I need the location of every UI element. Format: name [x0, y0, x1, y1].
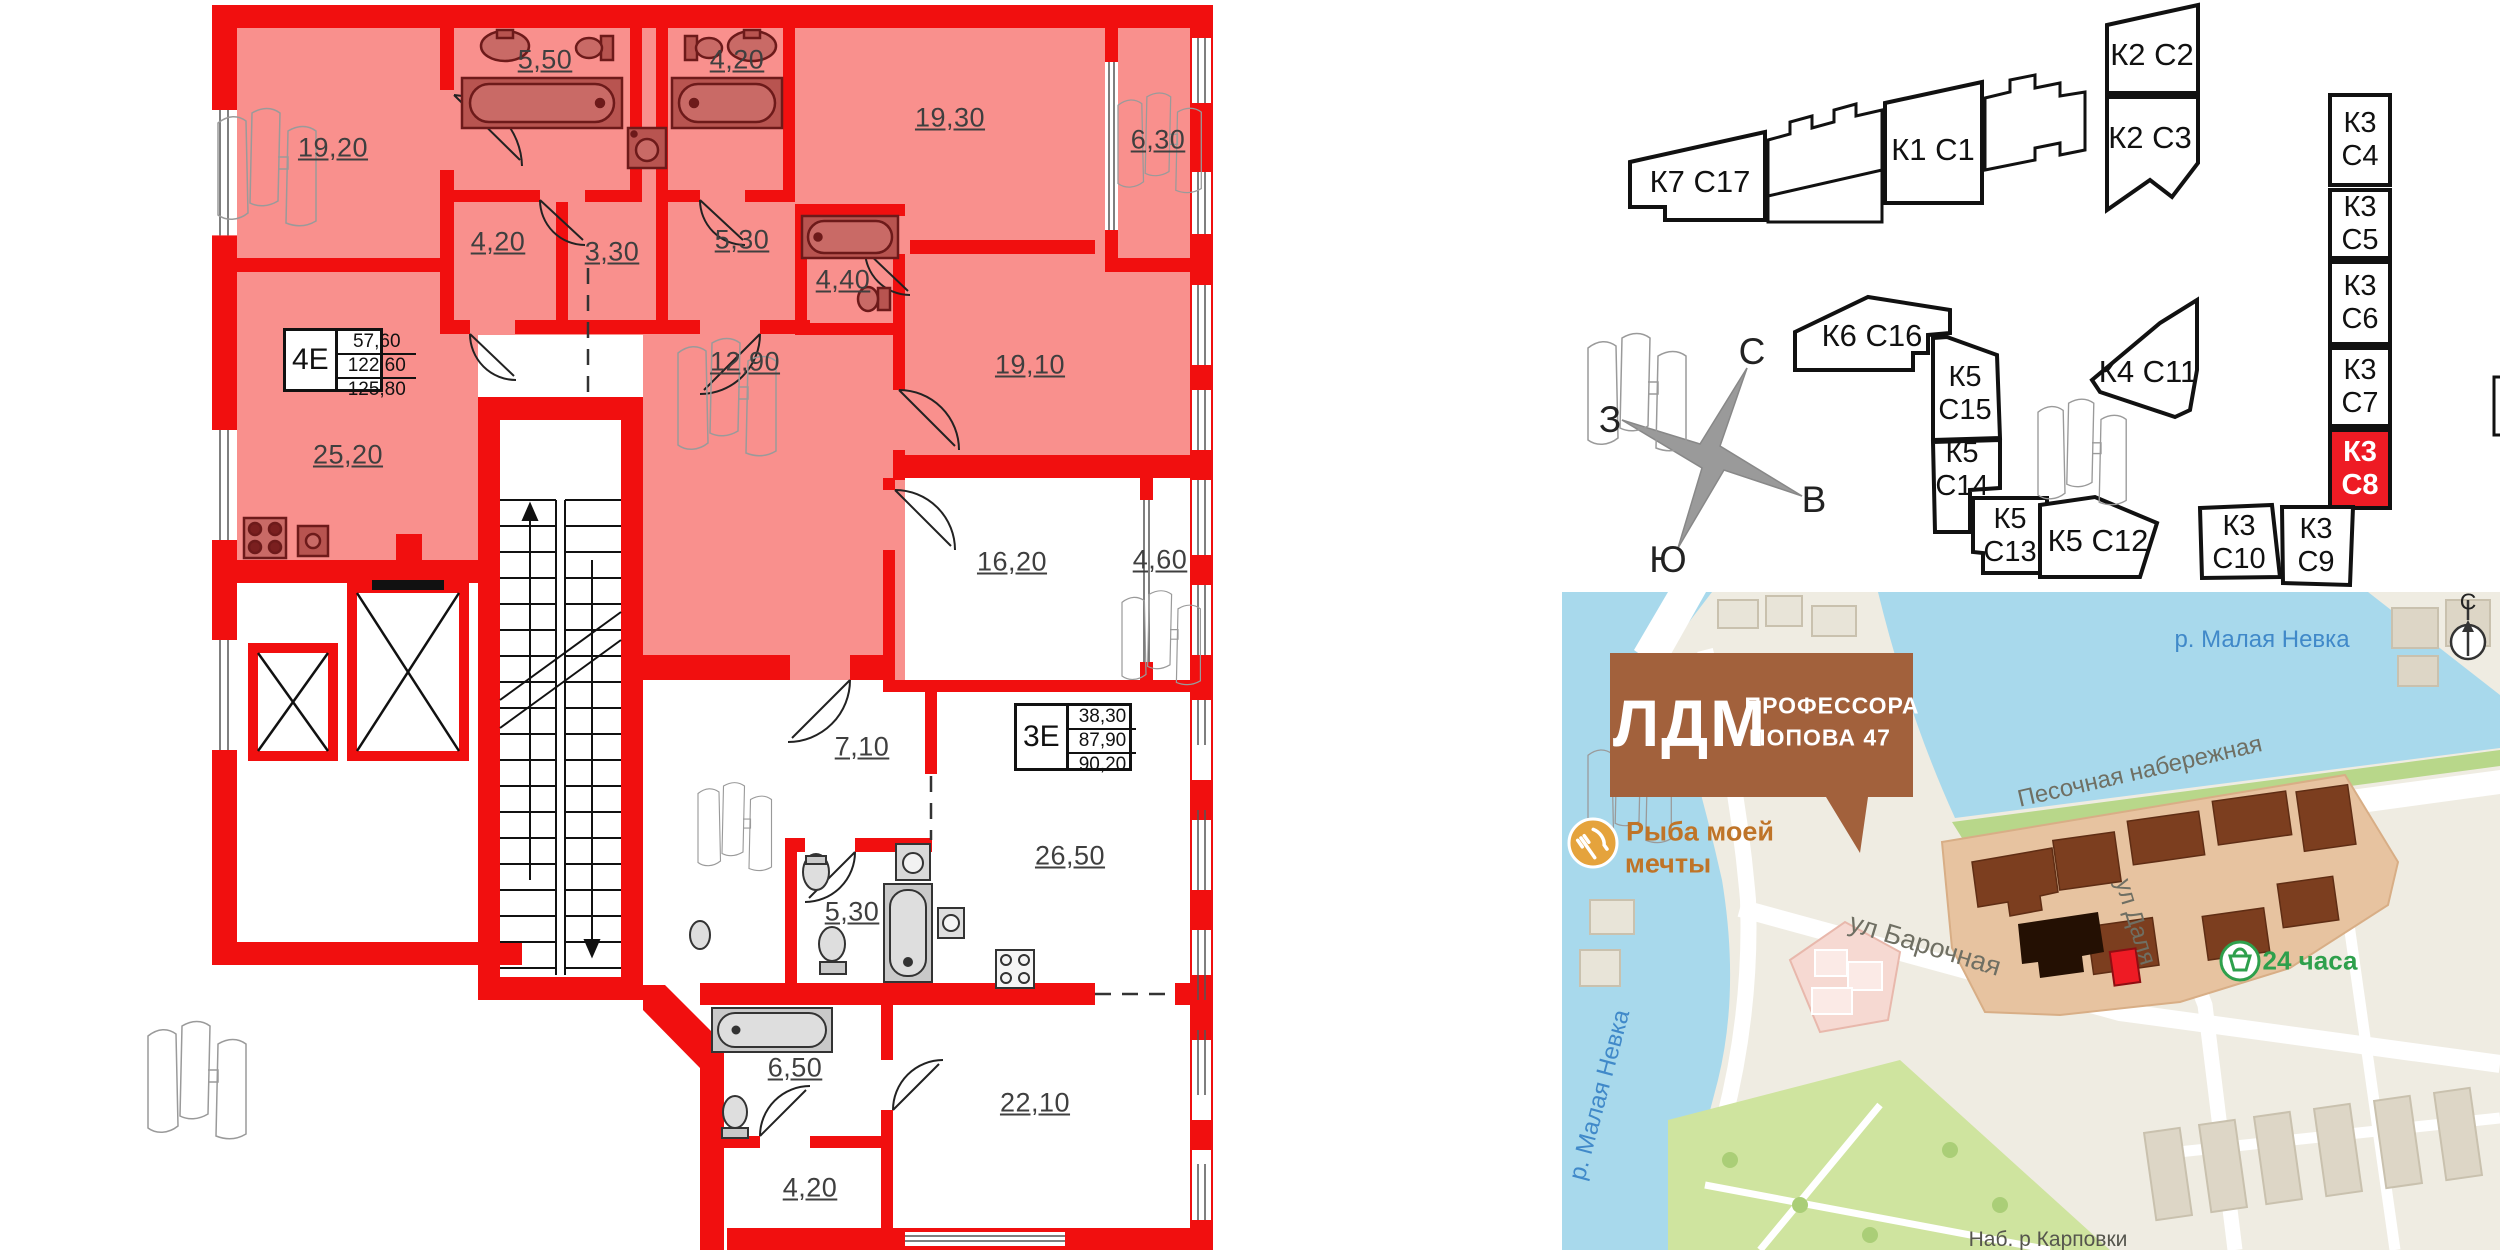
unit-4e-area-net: 122,60 [338, 353, 416, 377]
unit-4e-area-total: 125,80 [338, 377, 416, 401]
callout-subtitle-2: ПОПОВА 47 [1749, 725, 1891, 752]
room-area-3e-hall-b: 4,20 [783, 1173, 838, 1204]
site-label-k4c11[interactable]: К4 С11 [2099, 354, 2197, 390]
unit-3e-area-living: 38,30 [1069, 706, 1137, 728]
compass-west: З [1599, 399, 1621, 441]
unit-3e-code: 3Е [1017, 706, 1066, 768]
map-north-label: С [2460, 589, 2477, 616]
compass-east: В [1802, 479, 1827, 521]
site-label-k3c6[interactable]: К3С6 [2341, 270, 2378, 336]
site-label-k3c4[interactable]: К3С4 [2341, 107, 2378, 173]
store-icon[interactable] [2221, 942, 2259, 980]
unit-3e-area-total: 90,20 [1069, 752, 1137, 776]
site-label-k5c13[interactable]: К5С13 [1983, 503, 2036, 569]
site-label-k3c9[interactable]: К3С9 [2297, 513, 2334, 579]
site-label-k5c14[interactable]: К5С14 [1935, 437, 1988, 503]
compass-south: Ю [1649, 539, 1686, 581]
room-area-bath-c: 4,40 [816, 265, 871, 296]
unit-4e-info-table: 4Е 57,60 122,60 125,80 [283, 328, 383, 392]
compass-north: С [1739, 331, 1766, 373]
room-area-room-right: 19,10 [995, 350, 1065, 381]
site-label-k3c8-selected[interactable]: К3С8 [2341, 436, 2378, 502]
site-label-k1c1[interactable]: К1 С1 [1891, 132, 1975, 168]
site-building-unlabeled-2 [1985, 75, 2085, 170]
restaurant-icon[interactable] [1569, 819, 1617, 867]
restaurant-label-1: Рыба моей [1626, 817, 1774, 848]
room-area-kitchen: 25,20 [313, 440, 383, 471]
room-area-3e-bedroom: 16,20 [977, 547, 1047, 578]
room-area-living: 19,20 [298, 133, 368, 164]
room-area-3e-bath: 5,30 [825, 897, 880, 928]
floorplan-page: 19,20 5,50 4,20 19,30 6,30 4,20 3,30 5,3… [0, 0, 2500, 1250]
unit-3e-area-net: 87,90 [1069, 728, 1137, 752]
elevator-shafts [253, 580, 464, 756]
unit-4e-area-living: 57,60 [338, 331, 416, 353]
site-building-edge [2494, 377, 2500, 435]
unit-3e-info-table: 3Е 38,30 87,90 90,20 [1014, 703, 1132, 771]
site-label-k5c15[interactable]: К5С15 [1938, 361, 1991, 427]
room-area-bath-b: 4,20 [710, 45, 765, 76]
room-area-hall-a: 4,20 [471, 227, 526, 258]
restaurant-label-2: мечты [1625, 849, 1711, 880]
embankment-bottom-label: Наб. р Карповки [1969, 1228, 2128, 1250]
room-area-laundry: 3,30 [585, 237, 640, 268]
floor-plan [148, 5, 1213, 1250]
store-label: 24 часа [2263, 946, 2358, 977]
callout-subtitle-1: ПРОФЕССОРА [1745, 693, 1920, 720]
site-label-k6c16[interactable]: К6 С16 [1822, 318, 1923, 354]
staircase [500, 500, 621, 975]
site-label-k3c7[interactable]: К3С7 [2341, 354, 2378, 420]
room-area-balcony-a: 6,30 [1131, 125, 1186, 156]
room-area-3e-balcony: 4,60 [1133, 545, 1188, 576]
site-label-k2c3[interactable]: К2 С3 [2108, 120, 2192, 156]
site-label-k5c12[interactable]: К5 С12 [2048, 523, 2149, 559]
site-label-k3c10[interactable]: К3С10 [2212, 510, 2265, 576]
room-area-3e-bath-b: 6,50 [768, 1053, 823, 1084]
room-area-hall-b: 5,30 [715, 225, 770, 256]
room-area-3e-kitchen: 26,50 [1035, 841, 1105, 872]
site-label-k3c5[interactable]: К3С5 [2341, 191, 2378, 257]
river-top-label: р. Малая Невка [2174, 626, 2349, 654]
room-area-3e-hall: 7,10 [835, 732, 890, 763]
site-label-k7c17[interactable]: К7 С17 [1650, 164, 1751, 200]
room-area-corridor: 12,90 [710, 347, 780, 378]
room-area-bedroom: 19,30 [915, 103, 985, 134]
room-area-3e-room: 22,10 [1000, 1088, 1070, 1119]
site-label-k2c2[interactable]: К2 С2 [2110, 37, 2194, 73]
page-canvas [0, 0, 2500, 1250]
unit-4e-code: 4Е [286, 331, 335, 389]
room-area-bath-a: 5,50 [518, 45, 573, 76]
